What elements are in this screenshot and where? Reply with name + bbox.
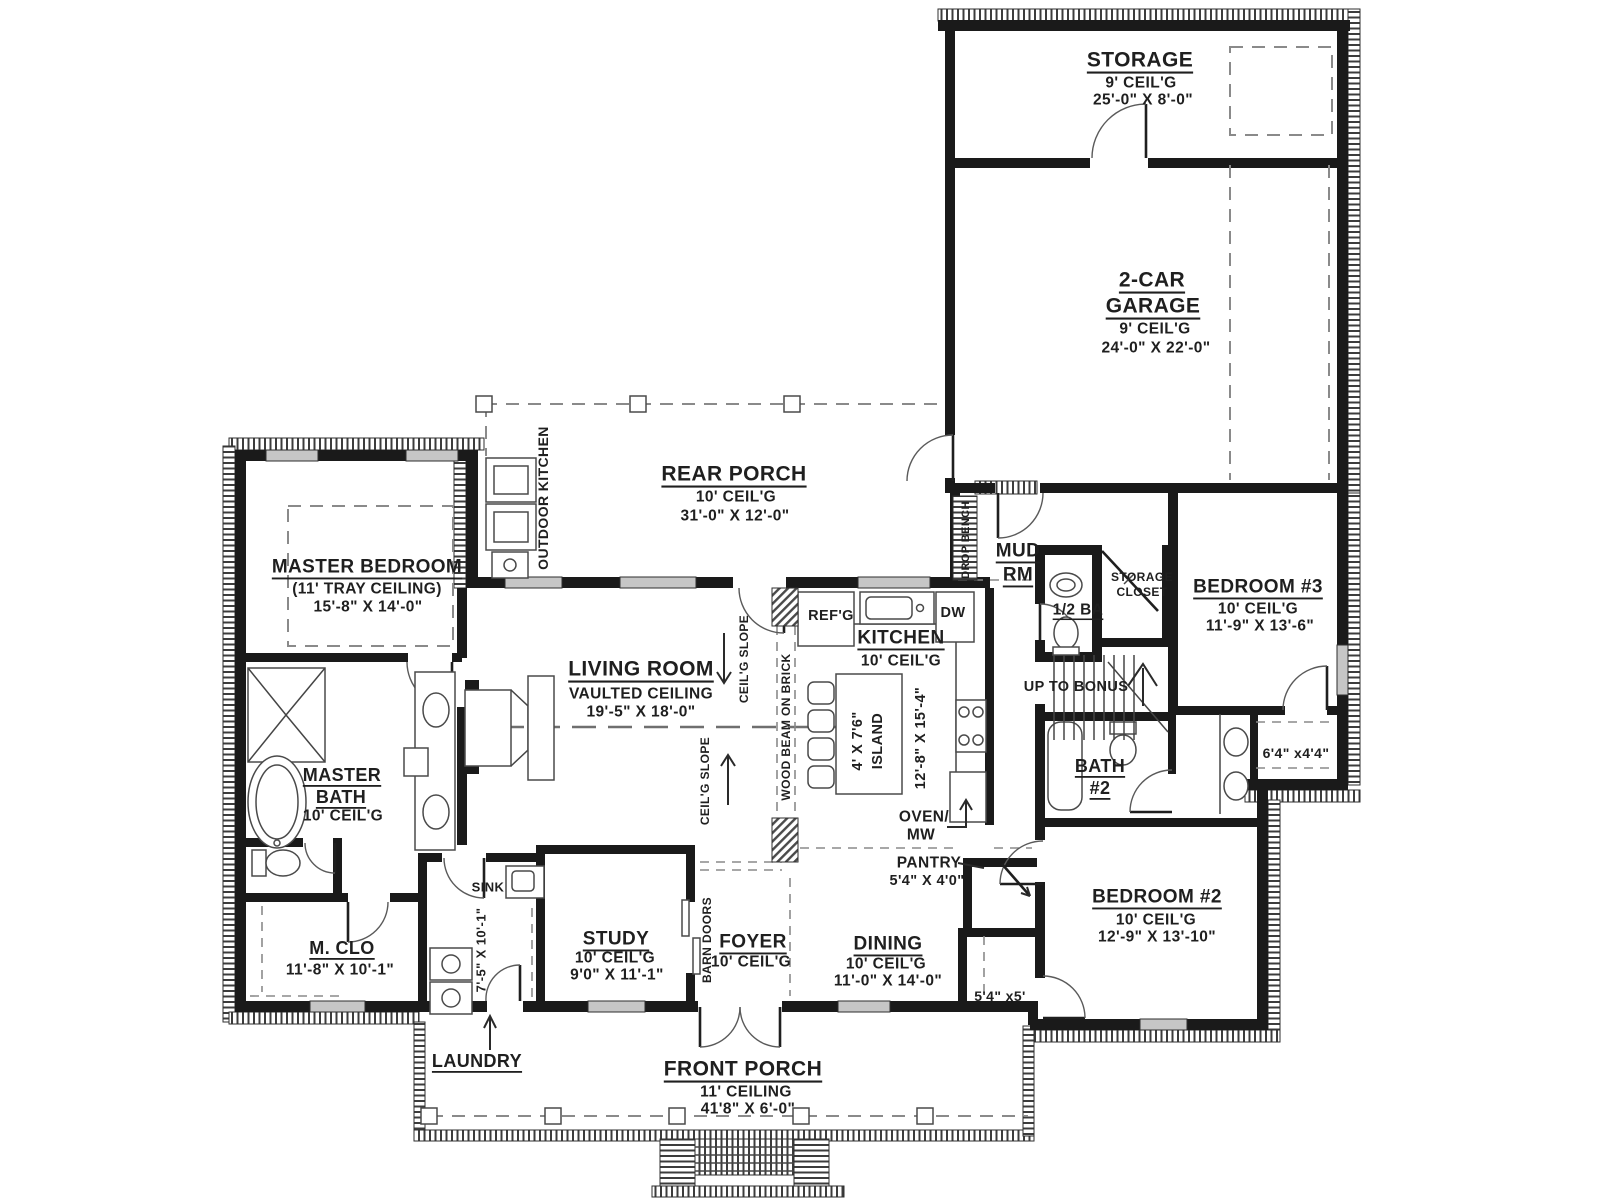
mud-room-title-2: RM [1003, 565, 1033, 586]
dining-title: DINING [854, 934, 923, 955]
bath2-title-2: #2 [1090, 778, 1111, 798]
floor-plan-canvas: STORAGE 9' CEIL'G 25'-0" X 8'-0" 2-CAR G… [0, 0, 1600, 1200]
outdoor-kitchen-label: OUTDOOR KITCHEN [535, 426, 551, 570]
master-bedroom-title: MASTER BEDROOM [272, 557, 462, 578]
storage-dashed-area [1230, 47, 1332, 135]
storage-title: STORAGE [1087, 49, 1193, 72]
walls [235, 20, 1350, 1030]
front-porch-ceiling: 11' CEILING [700, 1084, 792, 1101]
pantry-door-leaf [1002, 864, 1030, 896]
vanity-seat [404, 748, 428, 776]
barn-door-panel [682, 900, 689, 936]
master-bedroom-dims: 15'-8" X 14'-0" [313, 599, 422, 616]
bar-stool [808, 738, 834, 760]
bedroom3-title: BEDROOM #3 [1193, 577, 1323, 598]
fireplace [465, 676, 554, 780]
study-ceiling: 10' CEIL'G [575, 950, 655, 967]
ceiling-slope-label-1: CEIL'G SLOPE [737, 615, 751, 703]
bedroom2-dims: 12'-9" X 13'-10" [1098, 929, 1216, 946]
kitchen-dims: 12'-8" X 15'-4" [913, 687, 929, 789]
front-porch-dims: 41'8" X 6'-0" [701, 1101, 795, 1118]
bar-stool [808, 710, 834, 732]
living-room-dims: 19'-5" X 18'-0" [586, 704, 695, 721]
pantry-title: PANTRY [897, 855, 962, 872]
sink-bowl [1224, 772, 1248, 800]
bath2-title-1: BATH [1075, 756, 1125, 776]
bedroom3-dims: 11'-9" X 13'-6" [1206, 618, 1314, 635]
laundry-title: LAUNDRY [432, 1051, 522, 1071]
toilet-bowl [266, 850, 300, 876]
laundry-dims: 7'-5" X 10'-1" [474, 908, 489, 993]
toilet-tank [252, 850, 266, 876]
master-closet-dims: 11'-8" X 10'-1" [286, 962, 394, 979]
kitchen-ceiling: 10' CEIL'G [861, 653, 941, 670]
bar-stool [808, 682, 834, 704]
oven-label-1: OVEN/ [899, 809, 950, 826]
floor-plan: STORAGE 9' CEIL'G 25'-0" X 8'-0" 2-CAR G… [0, 0, 1600, 1200]
garage-ceiling: 9' CEIL'G [1119, 321, 1190, 338]
sink-bowl [423, 693, 449, 727]
wood-beam-label: WOOD BEAM ON BRICK [779, 653, 793, 800]
refrigerator-label: REF'G [808, 608, 854, 624]
outdoor-kitchen-appliances [486, 458, 536, 578]
half-bath-title: 1/2 BA [1053, 602, 1104, 619]
storage-ceiling: 9' CEIL'G [1105, 75, 1176, 92]
drop-bench-label: DROP BENCH [960, 501, 972, 579]
garage-dims: 24'-0" X 22'-0" [1101, 340, 1210, 357]
oven-label-2: MW [907, 827, 935, 844]
rear-porch-ceiling: 10' CEIL'G [696, 489, 776, 506]
garage-title-1: 2-CAR [1119, 269, 1185, 292]
up-to-bonus-label: UP TO BONUS [1024, 679, 1129, 695]
foyer-ceiling: 10' CEIL'G [711, 954, 791, 971]
dining-dims: 11'-0" X 14'-0" [834, 973, 942, 990]
rear-porch-title: REAR PORCH [661, 463, 806, 486]
bedroom3-ceiling: 10' CEIL'G [1218, 601, 1298, 618]
master-bedroom-ceiling: (11' TRAY CEILING) [292, 581, 442, 598]
storage-dims: 25'-0" X 8'-0" [1093, 92, 1193, 109]
bedroom2-closet-dims: 5'4" x5' [974, 988, 1026, 1004]
dishwasher-label: DW [941, 605, 966, 621]
toilet-bowl [1054, 617, 1078, 649]
kitchen-title: KITCHEN [857, 628, 944, 649]
study-title: STUDY [583, 929, 649, 950]
bedroom3-closet-dims: 6'4" x4'4" [1263, 745, 1330, 761]
bar-stool [808, 766, 834, 788]
mud-room-title-1: MUD [996, 541, 1040, 562]
living-room-ceiling: VAULTED CEILING [569, 686, 713, 703]
master-bath-title-1: MASTER [303, 765, 381, 785]
study-dims: 9'0" X 11'-1" [570, 967, 664, 984]
storage-closet-label-2: CLOSET [1116, 585, 1167, 599]
island-label-1: 4' X 7'6" [850, 711, 866, 770]
sink-bowl [1224, 728, 1248, 756]
pantry-dims: 5'4" X 4'0" [889, 873, 964, 889]
master-closet-title: M. CLO [309, 938, 374, 958]
bedroom2-title: BEDROOM #2 [1092, 887, 1222, 908]
front-steps [652, 1139, 844, 1197]
ceiling-slope-label-2: CEIL'G SLOPE [698, 737, 712, 825]
dining-ceiling: 10' CEIL'G [846, 956, 926, 973]
barn-door-panel [693, 938, 700, 974]
storage-closet-label-1: STORAGE [1111, 570, 1173, 584]
oven [950, 772, 986, 822]
sink-label: SINK [472, 880, 505, 895]
island-label-2: ISLAND [870, 713, 886, 769]
brick-pier [772, 588, 798, 626]
master-bath-title-2: BATH [316, 787, 366, 807]
living-room-title: LIVING ROOM [568, 658, 714, 681]
master-bath-ceiling: 10' CEIL'G [303, 808, 383, 825]
foyer-title: FOYER [719, 932, 786, 953]
bedroom2-ceiling: 10' CEIL'G [1116, 912, 1196, 929]
garage-title-2: GARAGE [1106, 295, 1201, 318]
rear-porch-dims: 31'-0" X 12'-0" [680, 508, 789, 525]
sink-bowl [423, 795, 449, 829]
brick-pier [772, 818, 798, 862]
front-porch-title: FRONT PORCH [664, 1058, 822, 1081]
